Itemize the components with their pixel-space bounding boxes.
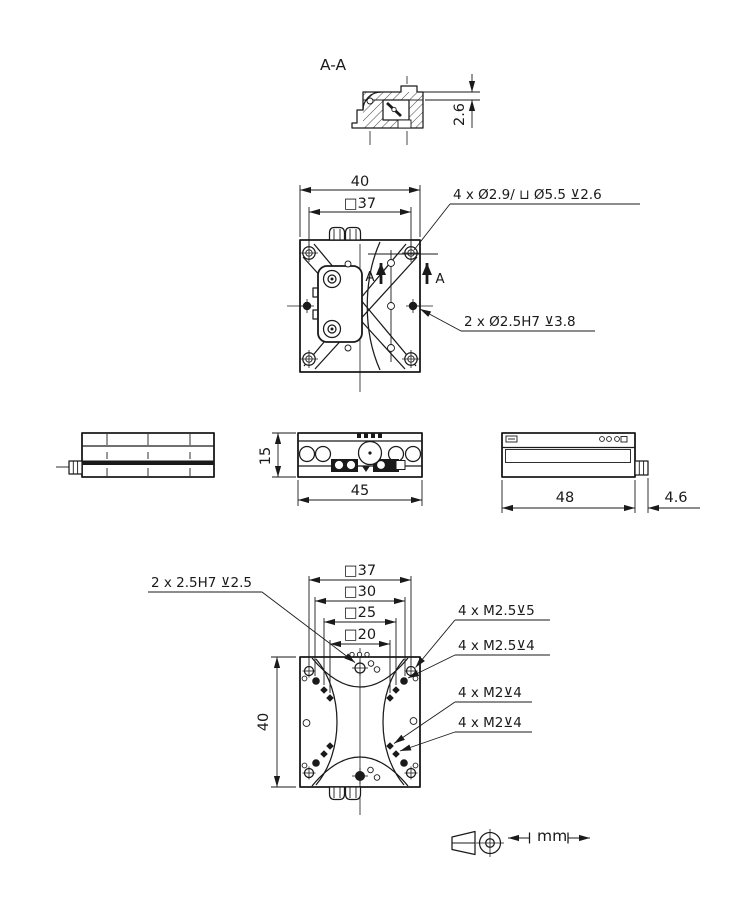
small-hole [374,667,380,673]
hole-cluster-bottom-right [386,742,418,779]
hatch-area [383,92,409,100]
note-m25-5-text: 4 x M2.5⊻5 [458,603,535,619]
dowel-hole [406,299,420,313]
note-dowel-top-text: 2 x Ø2.5H7 ⊻3.8 [464,314,576,330]
dim-30-value: □30 [344,584,376,600]
hole-cluster-top-right [386,665,418,702]
dim-37-bottom-value: □37 [344,563,376,579]
note-m25-4: 4 x M2.5⊻4 [408,638,550,678]
screw-heads-top [330,228,361,241]
dim-15-value: 15 [258,447,274,465]
dim-25-value: □25 [344,605,376,621]
dim-15: 15 [258,433,296,477]
small-hole [345,345,351,351]
dim-40-top-value: 40 [351,174,369,190]
hatch-area [363,92,383,128]
cut-label-a-right: A [435,271,445,287]
dowel-hole [300,299,314,313]
section-rail-detail [398,120,411,128]
top-platform-feature [313,266,362,342]
note-counterbore: 4 x Ø2.9/ ⊔ Ø5.5 ⊻2.6 [414,187,640,250]
dim-45: 45 [298,480,422,506]
section-label: A-A [320,56,347,74]
note-counterbore-text: 4 x Ø2.9/ ⊔ Ø5.5 ⊻2.6 [453,187,602,203]
small-hole [410,718,417,725]
dim-4-6-value: 4.6 [664,490,687,506]
hole-cluster-bottom-left [302,742,334,779]
small-hole [303,720,310,727]
dim-48: 48 [502,480,635,513]
left-view-stripe [82,461,214,466]
technical-drawing-page: A-A 2.6 [0,0,750,916]
small-hole [368,661,374,667]
section-view-aa: A-A 2.6 [320,56,480,145]
projection-symbol [452,829,504,857]
small-hole [345,261,351,267]
section-hole-detail [367,98,373,104]
hole-cluster-top-left [302,665,334,702]
dim-48-value: 48 [556,490,574,506]
left-view-connector [56,461,82,474]
dim-37-top-value: □37 [344,196,376,212]
right-side-view: 48 4.6 [502,433,700,513]
flexure-curve [367,242,380,370]
note-dowel-top: 2 x Ø2.5H7 ⊻3.8 [420,309,595,331]
note-dowel-bottom-text: 2 x 2.5H7 ⊻2.5 [151,575,252,591]
note-m2-4b-text: 4 x M2⊻4 [458,715,522,731]
label-markings [506,436,627,442]
cut-label-a-left: A [365,269,375,285]
cbore-hole [402,244,420,262]
dim-4-6: 4.6 [648,478,700,513]
small-hole [368,767,374,773]
note-m2-4a-text: 4 x M2⊻4 [458,685,522,701]
small-hole [374,775,380,781]
front-view: 15 45 [258,433,422,506]
note-m25-5: 4 x M2.5⊻5 [416,603,551,668]
dim-2-6-value: 2.6 [452,103,468,126]
cbore-hole [300,244,318,262]
center-dowel-hole-bottom [352,768,368,784]
units-label: mm [537,827,567,845]
dim-20-value: □20 [344,627,376,643]
right-view-band [506,450,631,463]
right-view-connector [635,461,648,475]
screw-heads-bottom [330,787,361,800]
bottom-view: □37 □30 □25 □20 40 [148,563,550,815]
left-side-view [56,433,214,477]
small-hole [388,303,395,310]
dim-2-6: 2.6 [419,74,480,128]
drawing-canvas: A-A 2.6 [0,0,750,916]
units-indicator: mm [508,827,590,845]
dim-40-bottom-value: 40 [256,713,272,731]
small-hole [388,345,395,352]
dim-45-value: 45 [351,483,369,499]
top-view: 40 □37 [287,174,640,392]
small-hole [388,260,395,267]
note-m25-4-text: 4 x M2.5⊻4 [458,638,535,654]
dim-40-bottom: 40 [256,657,296,787]
hatch-area [383,120,398,128]
